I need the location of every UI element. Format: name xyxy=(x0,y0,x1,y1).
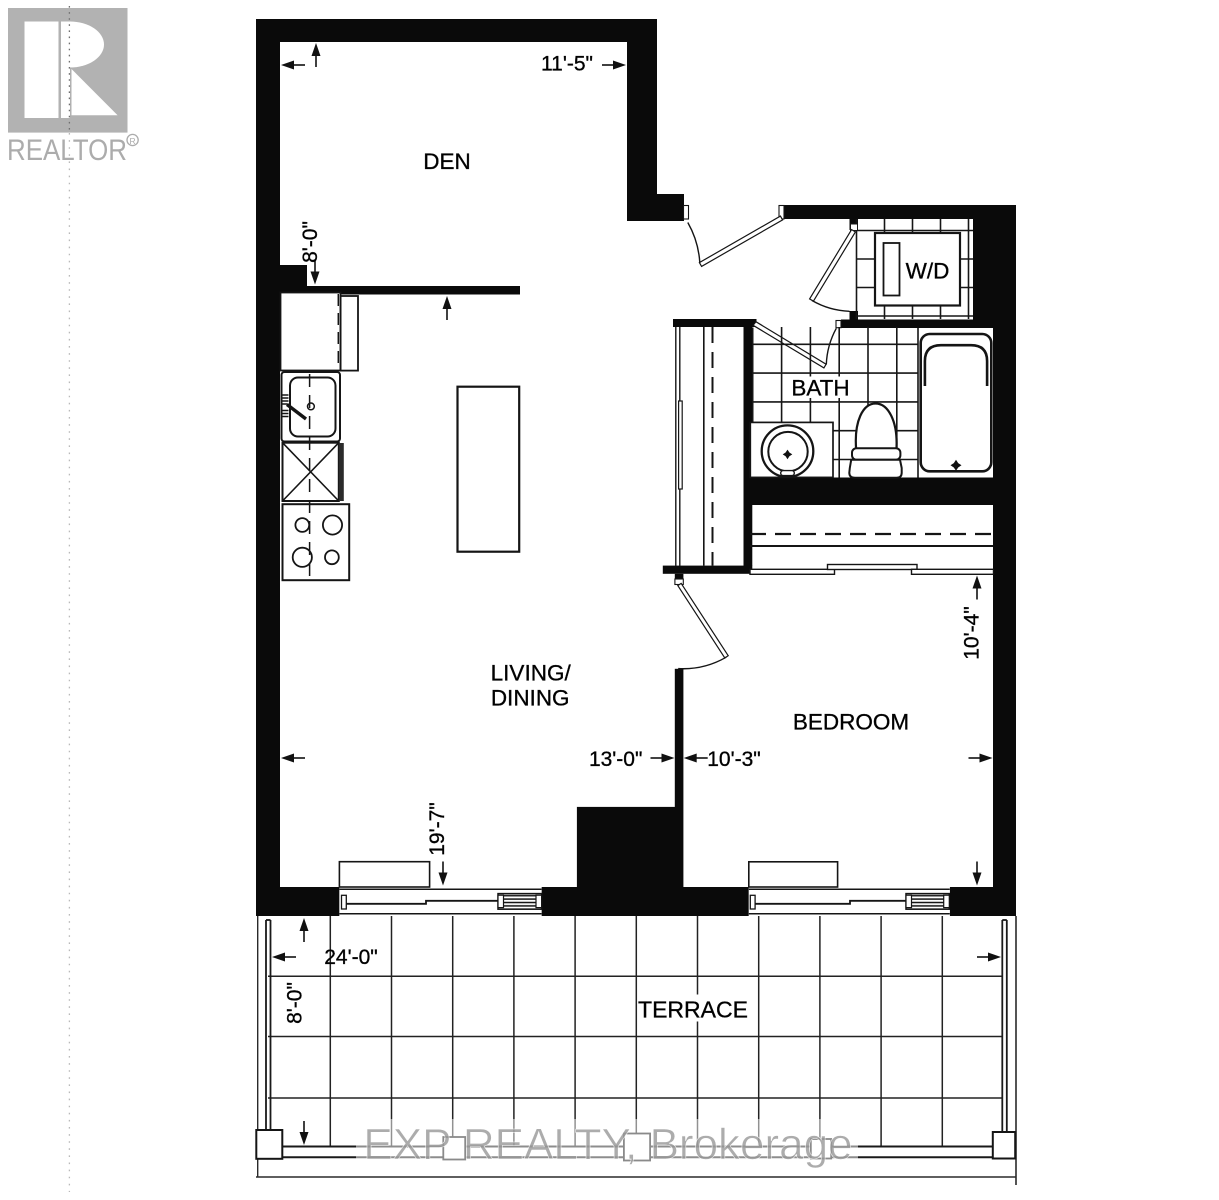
svg-text:EXP REALTY, Brokerage: EXP REALTY, Brokerage xyxy=(363,1120,852,1169)
svg-text:BATH: BATH xyxy=(791,376,849,401)
svg-text:13'-0": 13'-0" xyxy=(589,748,643,771)
svg-text:10'-3": 10'-3" xyxy=(707,748,761,771)
svg-text:DINING: DINING xyxy=(491,686,570,711)
svg-text:8'-0": 8'-0" xyxy=(299,221,322,263)
svg-text:TERRACE: TERRACE xyxy=(638,997,748,1023)
svg-text:W/D: W/D xyxy=(906,259,950,284)
svg-text:REALTOR: REALTOR xyxy=(7,134,127,167)
svg-text:24'-0": 24'-0" xyxy=(324,946,378,969)
svg-text:R: R xyxy=(130,136,136,146)
svg-text:BEDROOM: BEDROOM xyxy=(793,709,909,734)
svg-text:19'-7": 19'-7" xyxy=(426,802,449,856)
svg-text:10'-4": 10'-4" xyxy=(961,606,984,660)
svg-text:11'-5": 11'-5" xyxy=(541,53,593,76)
svg-text:DEN: DEN xyxy=(423,149,471,174)
svg-text:8'-0": 8'-0" xyxy=(284,982,307,1024)
svg-text:LIVING/: LIVING/ xyxy=(491,661,572,686)
